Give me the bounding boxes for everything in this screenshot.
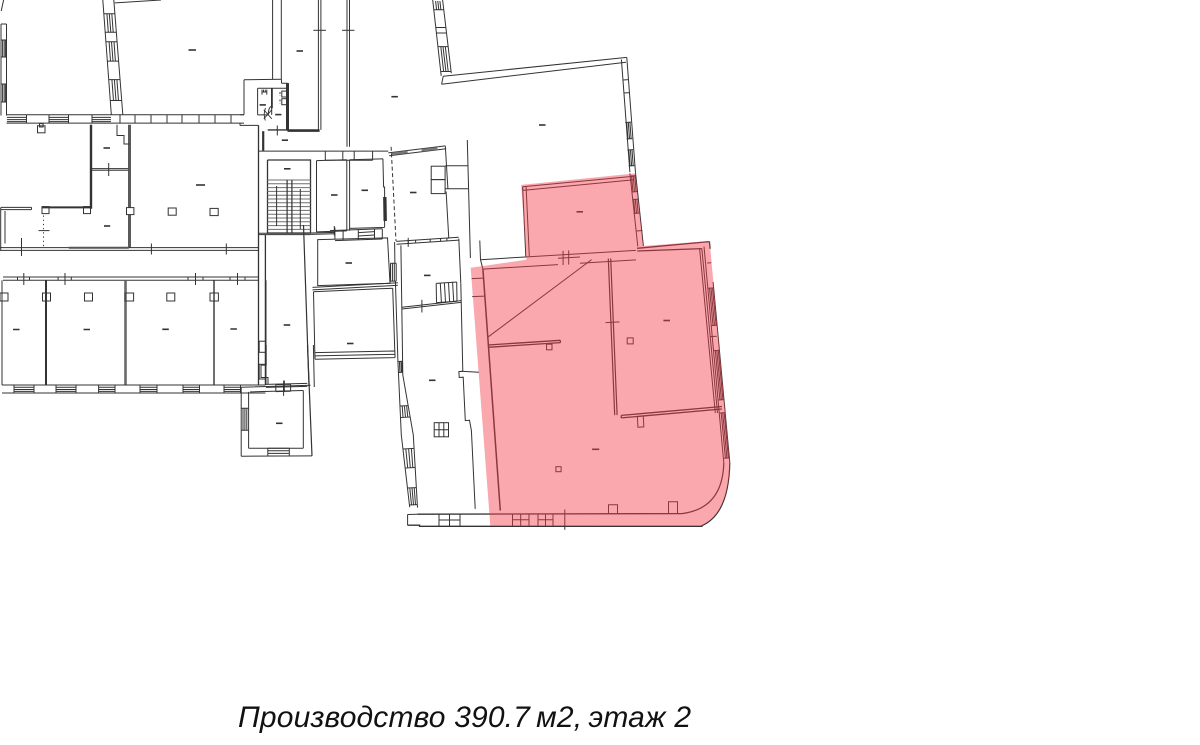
svg-text:Производство 390.7 м2, этаж 2: Производство 390.7 м2, этаж 2 — [238, 701, 691, 734]
